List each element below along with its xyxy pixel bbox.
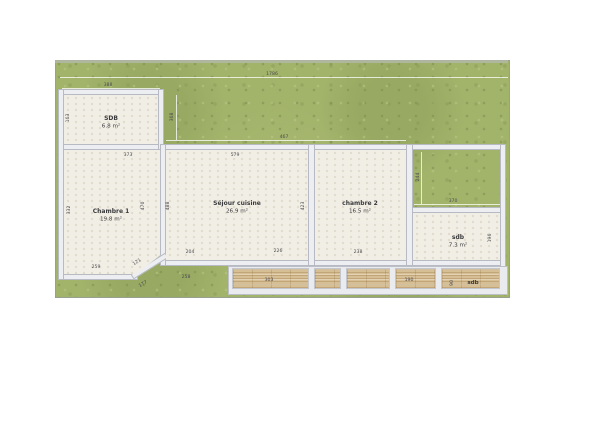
room-label-chambre-2: chambre 2 16.5 m² [342,200,378,214]
dimension-label: 488 [166,202,171,211]
dimension-label: 226 [274,249,283,254]
wall [58,274,138,280]
room-name: chambre 2 [342,200,378,207]
dimension-label: 373 [124,153,133,158]
dimension-label: 332 [67,206,72,215]
dimension-line [166,140,406,141]
room-area: 7.3 m² [449,241,467,248]
dimension-label: 196 [488,234,493,243]
deck-section[interactable] [395,268,436,289]
dimension-label: 370 [449,199,458,204]
room-label-sejour-cuisine: Séjour cuisine 26.9 m² [213,200,261,214]
dimension-label: 259 [92,265,101,270]
room-label-sdb: SDB 6.8 m² [102,115,120,129]
dimension-label: 423 [301,202,306,211]
dimension-label: 303 [265,278,274,283]
wall [158,89,164,150]
room-name: SDB [102,115,120,122]
plan-top-edge [55,60,508,63]
floor-plan-canvas: SDB 6.8 m² Chambre 1 19.8 m² Séjour cuis… [0,0,600,424]
room-name: Séjour cuisine [213,200,261,207]
deck-label: sdb [467,279,478,285]
dimension-label: 204 [186,250,195,255]
deck-section[interactable] [346,268,390,289]
dimension-label: 467 [280,135,289,140]
dimension-line [176,95,177,140]
room-area: 16.5 m² [342,207,378,214]
dimension-label: 258 [182,275,191,280]
room-name: Chambre 1 [93,208,130,215]
deck-section[interactable] [314,268,341,289]
wall [406,144,413,266]
dimension-label: 90 [450,280,455,286]
room-area: 19.8 m² [93,215,130,222]
dimension-label: 388 [104,83,113,88]
room-area: 26.9 m² [213,207,261,214]
room-label-chambre-1: Chambre 1 19.8 m² [93,208,130,222]
dimension-label: 163 [66,114,71,123]
wall [308,144,315,266]
room-name: sdb [449,234,467,241]
dimension-line [60,77,508,78]
dimension-line [421,152,422,204]
dimension-label: 470 [141,202,146,211]
room-area: 6.8 m² [102,122,120,129]
dimension-label: 244 [416,173,421,182]
dimension-line [414,204,500,205]
wall [58,144,164,150]
dimension-label: 1786 [266,72,278,77]
dimension-label: 238 [354,250,363,255]
dimension-label: 579 [231,153,240,158]
room-label-sdb-right: sdb 7.3 m² [449,234,467,248]
dimension-label: 190 [405,278,414,283]
dimension-label: 368 [170,113,175,122]
